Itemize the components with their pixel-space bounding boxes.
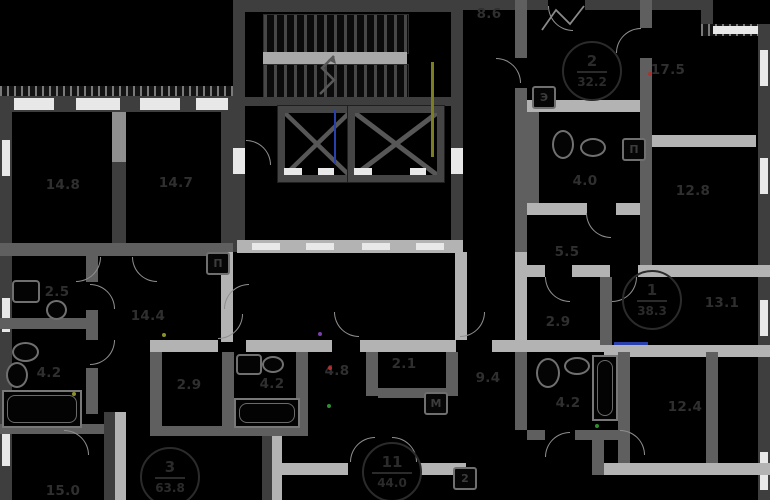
- elevator-sill: [318, 168, 334, 175]
- room-area-label: 2.9: [546, 314, 571, 330]
- wall: [233, 12, 245, 252]
- sink: [262, 356, 284, 373]
- riser-glyph: Э: [540, 91, 548, 104]
- toilet: [46, 300, 67, 320]
- room-area-label: 2.1: [392, 356, 417, 372]
- sink: [12, 342, 39, 362]
- wall: [515, 0, 527, 58]
- wall: [366, 352, 378, 396]
- window: [196, 98, 228, 110]
- wall-niche: [233, 148, 245, 174]
- lobby-door-opening: [306, 243, 334, 250]
- room-area-label: 8.6: [477, 6, 502, 22]
- wall: [446, 352, 458, 396]
- wall: [572, 265, 610, 277]
- room-area-label: 4.2: [556, 395, 581, 411]
- door-arc: [545, 432, 570, 457]
- door-arc: [132, 257, 157, 282]
- wall: [86, 368, 98, 414]
- elevator-sill: [354, 168, 372, 175]
- wall: [104, 412, 115, 500]
- wall: [0, 318, 98, 329]
- wall: [592, 430, 604, 475]
- marker-dot: [72, 392, 76, 396]
- washing-machine: [236, 354, 262, 375]
- room-area-label: 13.1: [705, 295, 740, 311]
- wall: [515, 88, 527, 252]
- wall: [602, 463, 770, 475]
- riser-symbol: 2: [453, 467, 477, 490]
- apartment-badge: 3 63.8: [140, 447, 200, 500]
- window: [14, 98, 54, 110]
- wall: [616, 203, 640, 215]
- room-area-label: 14.7: [159, 175, 194, 191]
- stair-treads: [263, 14, 409, 54]
- riser-glyph: М: [431, 397, 442, 410]
- room-area-label: 4.2: [37, 365, 62, 381]
- room-area-label: 12.4: [668, 399, 703, 415]
- balcony-rail-hatch: [0, 86, 233, 96]
- marker-dot: [318, 332, 322, 336]
- room-area-label: 2.9: [177, 377, 202, 393]
- riser-glyph: П: [213, 257, 222, 270]
- lobby-door-opening: [252, 243, 280, 250]
- wall: [758, 24, 770, 500]
- wall: [278, 463, 348, 475]
- apartment-number: 11: [372, 454, 413, 473]
- apartment-badge: 1 38.3: [622, 270, 682, 330]
- lobby-door-opening: [362, 243, 390, 250]
- apartment-area: 44.0: [377, 476, 407, 490]
- riser-symbol: П: [622, 138, 646, 161]
- riser-symbol: М: [424, 392, 448, 415]
- wall: [652, 135, 756, 147]
- wall: [600, 277, 612, 345]
- room-area-label: 14.4: [131, 308, 166, 324]
- room-area-label: 14.8: [46, 177, 81, 193]
- door-arc: [620, 430, 645, 455]
- sink: [580, 138, 606, 157]
- toilet: [6, 362, 28, 388]
- wall: [515, 265, 545, 277]
- wall: [112, 162, 126, 243]
- door-arc: [334, 312, 359, 337]
- wall: [492, 340, 604, 352]
- bathtub: [592, 355, 618, 421]
- door-arc: [90, 284, 115, 309]
- room-area-label: 15.0: [46, 483, 81, 499]
- apartment-area: 63.8: [155, 481, 185, 495]
- wall-niche: [451, 148, 463, 174]
- wall: [150, 352, 162, 436]
- room-area-label: 4.0: [573, 173, 598, 189]
- washing-machine: [12, 280, 40, 303]
- riser-pipe-line: [431, 62, 434, 157]
- riser-glyph: 2: [461, 472, 469, 485]
- wall: [527, 430, 545, 440]
- door-arc: [460, 312, 485, 337]
- lobby-door-opening: [416, 243, 444, 250]
- riser-symbol: П: [206, 252, 230, 275]
- room-area-label: 5.5: [555, 244, 580, 260]
- wall: [360, 340, 456, 352]
- wall: [0, 243, 233, 256]
- wall: [233, 0, 463, 12]
- wall: [515, 352, 527, 430]
- wall: [150, 340, 218, 352]
- room-area-label: 2.5: [45, 284, 70, 300]
- apartment-badge: 2 32.2: [562, 41, 622, 101]
- wall: [245, 97, 451, 106]
- wall: [115, 412, 126, 500]
- wall: [246, 340, 332, 352]
- marker-dot: [327, 404, 331, 408]
- apartment-number: 1: [637, 282, 667, 301]
- marker-dot: [595, 424, 599, 428]
- window: [760, 158, 768, 194]
- wall: [262, 436, 272, 500]
- room-area-label: 17.5: [651, 62, 686, 78]
- window: [76, 98, 120, 110]
- door-arc: [545, 277, 570, 302]
- room-area-label: 9.4: [476, 370, 501, 386]
- riser-glyph: П: [629, 143, 638, 156]
- wall: [221, 112, 233, 252]
- vent-shaft: [112, 112, 126, 162]
- door-arc: [586, 213, 611, 238]
- apartment-number: 3: [155, 459, 185, 478]
- room-area-label: 4.2: [260, 376, 285, 392]
- balcony-door-line: [614, 342, 648, 345]
- window: [140, 98, 180, 110]
- apartment-area: 32.2: [577, 75, 607, 89]
- toilet: [536, 358, 560, 388]
- apartment-number: 2: [577, 53, 607, 72]
- stair-direction-arrow: [314, 50, 344, 98]
- bathtub: [2, 390, 82, 428]
- elevator-cross-icon: [285, 113, 349, 175]
- marker-dot: [162, 333, 166, 337]
- wall: [527, 203, 587, 215]
- elevator-cross-icon: [355, 113, 437, 175]
- wall: [706, 352, 718, 463]
- bathtub: [234, 398, 300, 428]
- door-arc: [246, 140, 271, 165]
- door-arc: [496, 58, 521, 83]
- elevator-door-line: [334, 110, 336, 164]
- wall: [451, 12, 463, 252]
- wall: [640, 58, 652, 265]
- window: [760, 300, 768, 336]
- door-arc: [218, 314, 243, 339]
- elevator-sill: [284, 168, 302, 175]
- apartment-badge: 11 44.0: [362, 442, 422, 500]
- marker-dot: [648, 72, 652, 76]
- floor-plan: Э П П М 2 14.8 14.7 8.6 17.5 4.0 12.8 5.…: [0, 0, 770, 500]
- window: [760, 50, 768, 86]
- marker-dot: [328, 366, 332, 370]
- sink: [564, 357, 590, 375]
- elevator-sill: [410, 168, 426, 175]
- door-leaf-zigzag: [540, 2, 588, 32]
- window: [2, 140, 10, 176]
- door-arc: [90, 340, 115, 365]
- room-area-label: 12.8: [676, 183, 711, 199]
- wall: [222, 352, 234, 430]
- wall: [640, 0, 652, 28]
- apartment-area: 38.3: [637, 304, 667, 318]
- wall: [527, 112, 539, 203]
- riser-symbol: Э: [532, 86, 556, 109]
- toilet: [552, 130, 574, 159]
- door-arc: [616, 28, 641, 53]
